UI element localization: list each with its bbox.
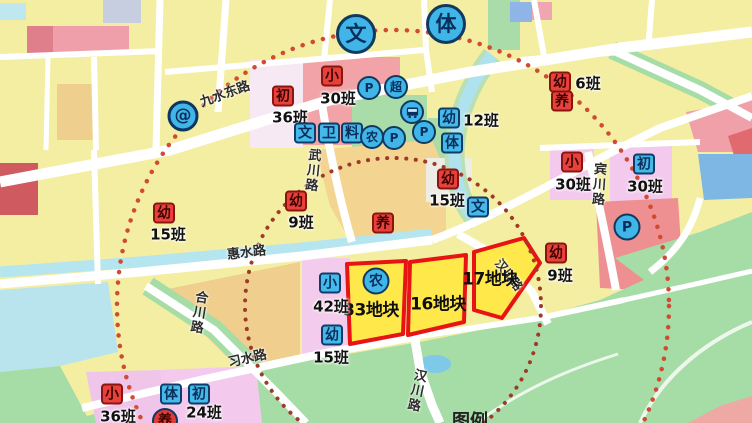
health-box-marker: 卫 bbox=[318, 123, 340, 144]
kindergarten-b-marker: 幼 bbox=[549, 72, 571, 93]
sports-box-b-marker: 体 bbox=[160, 384, 182, 405]
kindergarten-f-class-count: 15班 bbox=[150, 224, 186, 245]
primary-school-d-marker: 小 bbox=[101, 384, 123, 405]
kindergarten-c-class-count: 9班 bbox=[288, 212, 313, 233]
parking-c-marker: P bbox=[412, 120, 436, 144]
kindergarten-g-marker: 幼 bbox=[321, 325, 343, 346]
culture-box-a-marker: 文 bbox=[294, 123, 316, 144]
sports-box-a-marker: 体 bbox=[441, 133, 463, 154]
kindergarten-f-marker: 幼 bbox=[153, 203, 175, 224]
legend-title-partial: 图例 bbox=[452, 407, 488, 423]
parking-d-marker: P bbox=[614, 214, 641, 241]
supermarket-marker: 超 bbox=[384, 75, 408, 99]
elder-care-a-marker: 养 bbox=[551, 91, 573, 112]
middle-school-c-class-count: 24班 bbox=[186, 402, 222, 423]
middle-school-b-marker: 初 bbox=[633, 154, 655, 175]
kindergarten-e-class-count: 9班 bbox=[547, 265, 572, 286]
sports-top-marker: 体 bbox=[426, 4, 466, 44]
primary-school-a-marker: 小 bbox=[321, 66, 343, 87]
middle-school-b-class-count: 30班 bbox=[627, 176, 663, 197]
culture-box-b-marker: 文 bbox=[467, 197, 489, 218]
markers-layer: 文体小30班P超初36班文卫料农PP幼12班体幼6班养小30班初30班P幼9班养… bbox=[0, 0, 752, 423]
metro-station-icon: @ bbox=[168, 101, 199, 132]
middle-school-c-marker: 初 bbox=[188, 384, 210, 405]
elder-care-b-marker: 养 bbox=[372, 213, 394, 234]
kindergarten-c-marker: 幼 bbox=[285, 191, 307, 212]
parcel-17-label: 17地块 bbox=[462, 265, 518, 290]
primary-school-a-class-count: 30班 bbox=[320, 88, 356, 109]
bus-icon bbox=[405, 105, 420, 120]
primary-school-c-class-count: 42班 bbox=[313, 296, 349, 317]
parcel-16-label: 16地块 bbox=[410, 290, 466, 315]
culture-top-marker: 文 bbox=[336, 14, 376, 54]
kindergarten-b-class-count: 6班 bbox=[575, 73, 600, 94]
kindergarten-a-marker: 幼 bbox=[438, 108, 460, 129]
farmers-market-b-marker: 农 bbox=[363, 268, 390, 295]
primary-school-b-class-count: 30班 bbox=[555, 174, 591, 195]
parcel-33-label: 33地块 bbox=[343, 296, 399, 321]
farmers-market-a-marker: 农 bbox=[360, 125, 384, 149]
middle-school-a-marker: 初 bbox=[272, 86, 294, 107]
kindergarten-g-class-count: 15班 bbox=[313, 347, 349, 368]
kindergarten-d-marker: 幼 bbox=[437, 169, 459, 190]
parking-b-marker: P bbox=[382, 126, 406, 150]
primary-school-b-marker: 小 bbox=[561, 152, 583, 173]
primary-school-d-class-count: 36班 bbox=[100, 406, 136, 423]
parking-a-marker: P bbox=[357, 76, 381, 100]
kindergarten-d-class-count: 15班 bbox=[429, 190, 465, 211]
primary-school-c-marker: 小 bbox=[319, 273, 341, 294]
kindergarten-e-marker: 幼 bbox=[545, 243, 567, 264]
planning-map: 九水东路 武川路 惠水路 合川路 习水路 汉川路 汉川路 宾川路 33地块 16… bbox=[0, 0, 752, 423]
elder-care-c-marker: 养 bbox=[152, 408, 178, 423]
kindergarten-a-class-count: 12班 bbox=[463, 110, 499, 131]
